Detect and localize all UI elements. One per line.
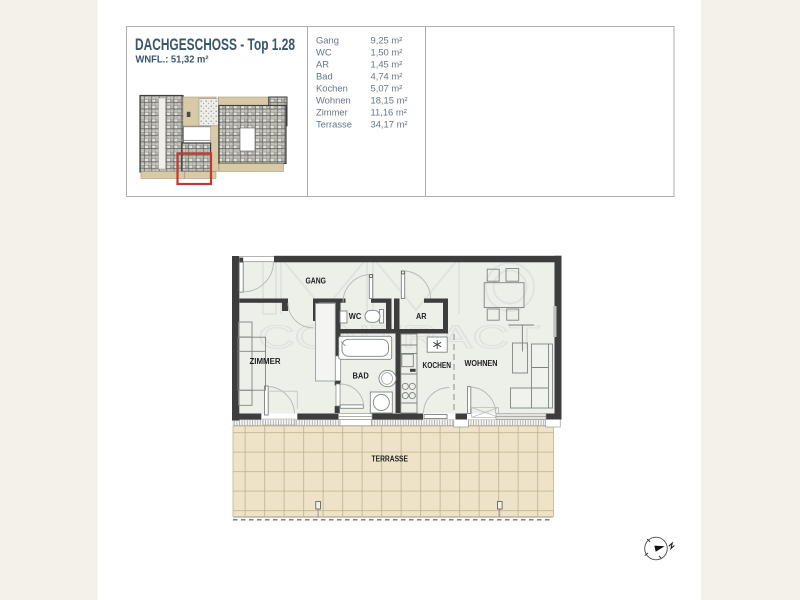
svg-text:4,74 m²: 4,74 m² <box>371 70 403 81</box>
svg-text:TERRASSE: TERRASSE <box>372 455 409 464</box>
svg-text:Zimmer: Zimmer <box>316 106 348 117</box>
svg-text:GANG: GANG <box>306 277 327 286</box>
svg-text:WC: WC <box>316 46 332 57</box>
svg-text:1,50 m²: 1,50 m² <box>371 46 403 57</box>
svg-text:Gang: Gang <box>316 34 339 45</box>
svg-text:Kochen: Kochen <box>316 82 348 93</box>
svg-text:WC: WC <box>349 312 362 321</box>
svg-text:Terrasse: Terrasse <box>316 118 352 129</box>
svg-text:ZIMMER: ZIMMER <box>250 357 281 366</box>
svg-text:11,16 m²: 11,16 m² <box>371 106 407 117</box>
svg-text:KOCHEN: KOCHEN <box>423 361 452 370</box>
svg-text:34,17 m²: 34,17 m² <box>371 118 408 129</box>
svg-text:9,25 m²: 9,25 m² <box>371 34 403 45</box>
svg-text:DACHGESCHOSS - Top 1.28: DACHGESCHOSS - Top 1.28 <box>135 36 295 54</box>
svg-text:WNFL.: 51,32 m²: WNFL.: 51,32 m² <box>136 55 210 66</box>
svg-text:AR: AR <box>416 312 427 321</box>
svg-text:Bad: Bad <box>316 70 333 81</box>
svg-text:AR: AR <box>316 58 329 69</box>
svg-text:5,07 m²: 5,07 m² <box>371 82 403 93</box>
svg-text:1,45 m²: 1,45 m² <box>371 58 403 69</box>
svg-text:18,15 m²: 18,15 m² <box>371 94 408 105</box>
svg-text:BAD: BAD <box>353 371 370 380</box>
svg-text:WOHNEN: WOHNEN <box>465 359 498 368</box>
svg-text:Wohnen: Wohnen <box>316 94 351 105</box>
